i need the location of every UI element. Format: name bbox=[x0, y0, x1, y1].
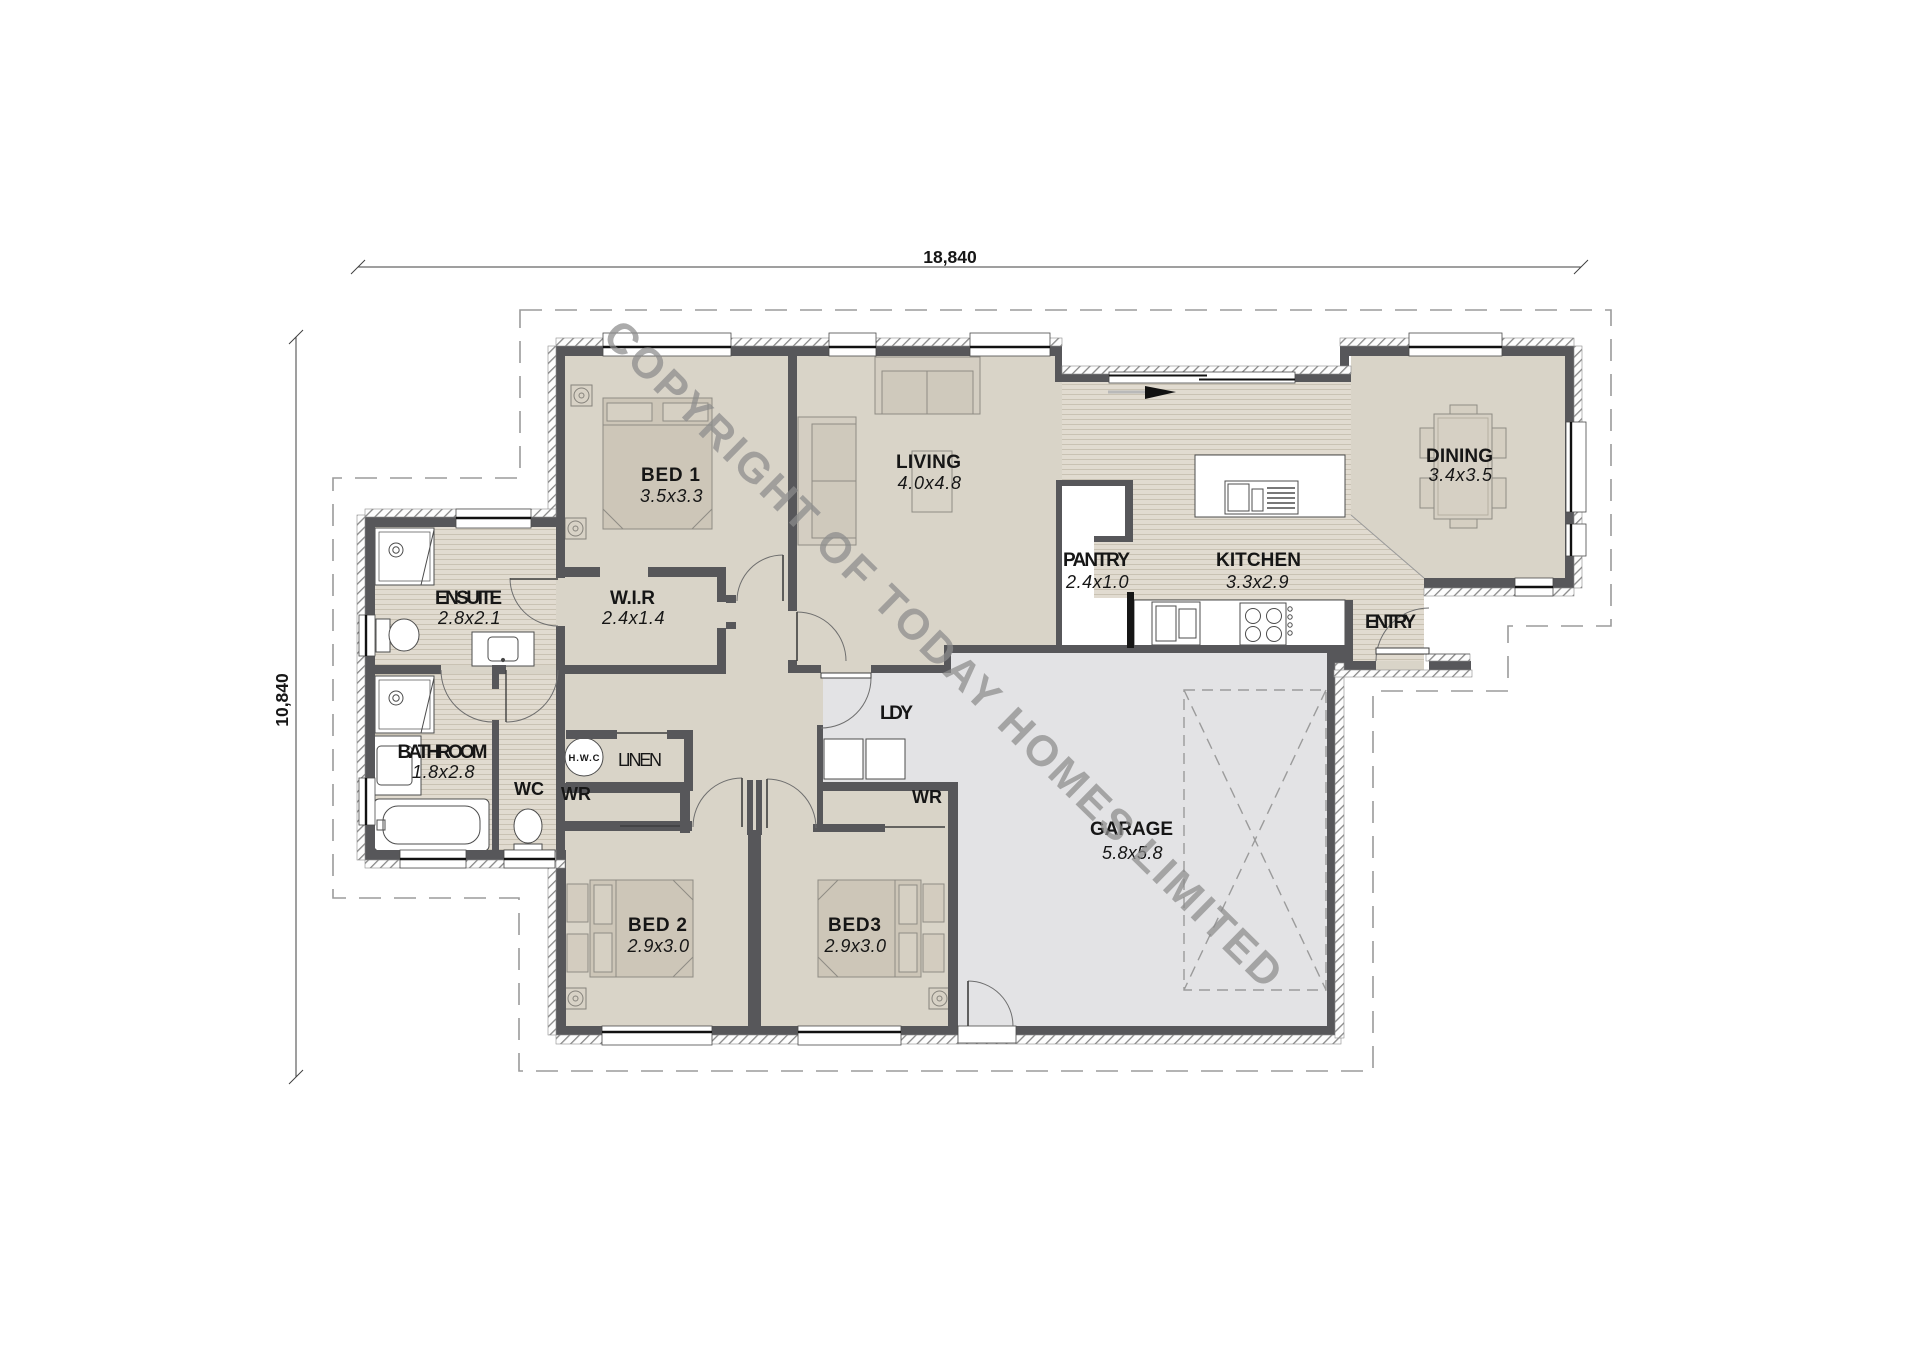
svg-text:PANTRY: PANTRY bbox=[1063, 550, 1133, 571]
svg-text:2.4x1.4: 2.4x1.4 bbox=[601, 608, 666, 628]
svg-text:2.4x1.0: 2.4x1.0 bbox=[1065, 572, 1130, 592]
svg-text:BED 2: BED 2 bbox=[628, 915, 690, 936]
svg-text:4.0x4.8: 4.0x4.8 bbox=[898, 473, 963, 493]
svg-text:3.4x3.5: 3.4x3.5 bbox=[1429, 465, 1494, 485]
svg-text:ENTRY: ENTRY bbox=[1365, 612, 1419, 633]
svg-text:3.5x3.3: 3.5x3.3 bbox=[640, 486, 704, 506]
svg-text:LDY: LDY bbox=[880, 703, 916, 724]
svg-text:2.9x3.0: 2.9x3.0 bbox=[824, 936, 888, 956]
svg-text:10,840: 10,840 bbox=[272, 673, 292, 727]
svg-text:H.W.C: H.W.C bbox=[569, 753, 600, 764]
svg-text:LINEN: LINEN bbox=[618, 750, 662, 770]
svg-text:KITCHEN: KITCHEN bbox=[1216, 550, 1304, 571]
svg-text:ENSUITE: ENSUITE bbox=[435, 588, 505, 609]
svg-text:DINING: DINING bbox=[1426, 446, 1496, 467]
svg-text:18,840: 18,840 bbox=[923, 247, 977, 267]
svg-text:W R: W R bbox=[912, 787, 944, 807]
svg-text:W R: W R bbox=[561, 784, 593, 804]
svg-text:BED 1: BED 1 bbox=[641, 465, 703, 486]
svg-text:1.8x2.8: 1.8x2.8 bbox=[412, 762, 476, 782]
svg-text:BED3: BED3 bbox=[828, 915, 884, 936]
svg-text:3.3x2.9: 3.3x2.9 bbox=[1226, 572, 1290, 592]
svg-text:LIVING: LIVING bbox=[896, 452, 964, 473]
svg-text:BATHROOM: BATHROOM bbox=[398, 742, 491, 763]
svg-text:2.8x2.1: 2.8x2.1 bbox=[437, 608, 502, 628]
svg-text:W C: W C bbox=[514, 779, 546, 799]
svg-text:2.9x3.0: 2.9x3.0 bbox=[627, 936, 691, 956]
svg-text:W.I.R: W.I.R bbox=[610, 588, 658, 609]
